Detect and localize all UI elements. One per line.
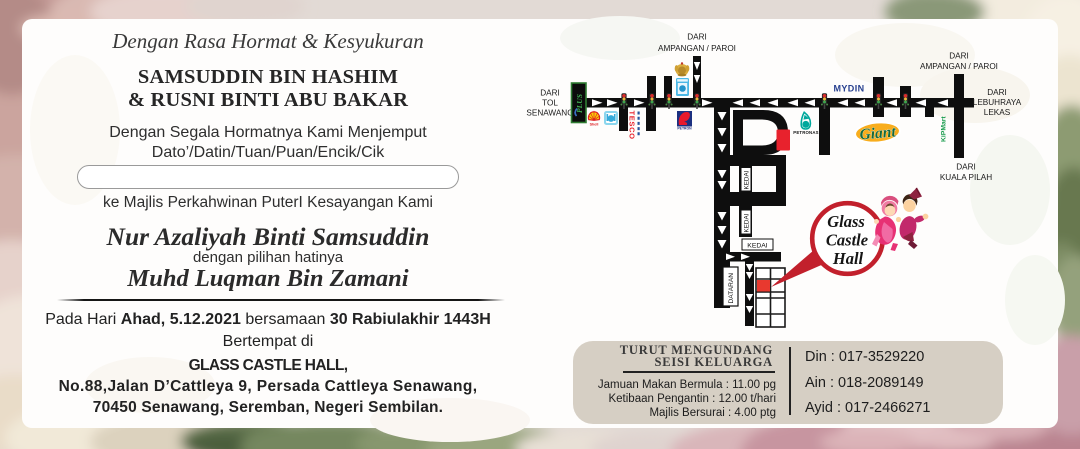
svg-text:LEBUHRAYA: LEBUHRAYA <box>973 98 1022 107</box>
svg-text:PETRONAS: PETRONAS <box>793 130 818 135</box>
svg-text:TOL: TOL <box>542 99 558 108</box>
svg-text:AMPANGAN / PAROI: AMPANGAN / PAROI <box>658 44 736 53</box>
svg-text:DARI: DARI <box>987 88 1007 97</box>
svg-text:Hall: Hall <box>832 249 864 268</box>
svg-text:Glass: Glass <box>827 212 865 231</box>
svg-text:DARI: DARI <box>949 52 969 61</box>
svg-text:DARI: DARI <box>687 33 707 42</box>
svg-text:Shell: Shell <box>590 122 599 126</box>
svg-text:LEKAS: LEKAS <box>984 108 1011 117</box>
svg-text:KEDAI: KEDAI <box>744 170 751 189</box>
svg-text:KEDAI: KEDAI <box>747 242 768 249</box>
svg-text:Castle: Castle <box>826 231 868 250</box>
svg-text:AMPANGAN / PAROI: AMPANGAN / PAROI <box>920 62 998 71</box>
svg-text:Giant: Giant <box>859 123 897 143</box>
svg-text:KUALA PILAH: KUALA PILAH <box>940 173 992 182</box>
svg-text:KEDAI: KEDAI <box>744 213 751 232</box>
svg-text:DARI: DARI <box>956 163 976 172</box>
svg-text:SENAWANG: SENAWANG <box>526 109 573 118</box>
svg-text:KiPMart: KiPMart <box>941 116 948 142</box>
svg-text:DARI: DARI <box>540 89 560 98</box>
svg-text:PETRON: PETRON <box>677 127 692 131</box>
svg-text:TESCO: TESCO <box>628 111 637 140</box>
svg-text:MYDIN: MYDIN <box>834 84 865 94</box>
svg-text:DATARAN: DATARAN <box>728 273 735 304</box>
